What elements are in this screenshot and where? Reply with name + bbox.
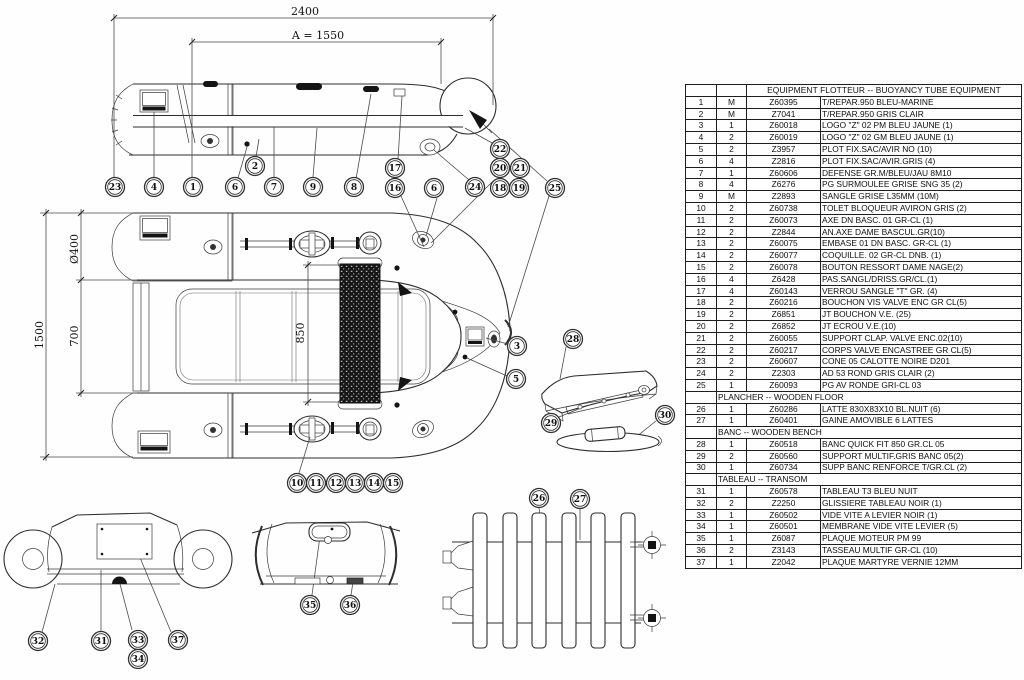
cell-no: 7 [686, 167, 717, 179]
svg-text:36: 36 [344, 601, 357, 611]
cell-qty: 1 [717, 120, 747, 132]
cell-qty: 4 [717, 273, 747, 285]
svg-text:13: 13 [349, 479, 362, 489]
callout-16: 16 [386, 179, 405, 198]
svg-text:31: 31 [95, 637, 108, 647]
table-section-row: BANC -- WOODEN BENCH [686, 427, 1022, 439]
cell-qty: 1 [717, 521, 747, 533]
section-title: TABLEAU -- TRANSOM [717, 474, 1022, 486]
svg-text:12: 12 [330, 479, 343, 489]
table-row: 2MZ7041T/REPAR.950 GRIS CLAIR [686, 108, 1022, 120]
callout-27: 27 [571, 490, 590, 509]
cell-ref: Z2303 [747, 368, 821, 380]
cell-no: 19 [686, 309, 717, 321]
cell-ref: Z60502 [747, 509, 821, 521]
cell-ref: Z60018 [747, 120, 821, 132]
svg-text:6: 6 [232, 183, 238, 193]
cell-qty: M [717, 96, 747, 108]
cell-desc: LOGO "Z" 02 GM BLEU JAUNE (1) [821, 132, 1022, 144]
cell-ref: Z6276 [747, 179, 821, 191]
table-row: 182Z60216BOUCHON VIS VALVE ENC GR CL(5) [686, 297, 1022, 309]
callout-11: 11 [307, 474, 326, 493]
callout-14: 14 [365, 474, 384, 493]
cell-qty: 2 [717, 238, 747, 250]
callout-35: 35 [301, 596, 320, 615]
callout-1: 1 [184, 178, 203, 197]
svg-text:8: 8 [351, 183, 357, 193]
cell-qty: 1 [717, 533, 747, 545]
cell-desc: BANC QUICK FIT 850 GR.CL 05 [821, 438, 1022, 450]
cell-no: 26 [686, 403, 717, 415]
cell-no: 2 [686, 108, 717, 120]
cell-no: 23 [686, 356, 717, 368]
svg-text:26: 26 [533, 494, 546, 504]
cell-no: 3 [686, 120, 717, 132]
table-row: 341Z60501MEMBRANE VIDE VITE LEVIER (5) [686, 521, 1022, 533]
cell-qty: 1 [717, 415, 747, 427]
parts-table-body: 1MZ60395T/REPAR.950 BLEU-MARINE2MZ7041T/… [686, 96, 1022, 568]
cell-desc: GAINE AMOVIBLE 6 LATTES [821, 415, 1022, 427]
cell-ref: Z60560 [747, 450, 821, 462]
cell-ref: Z2042 [747, 556, 821, 568]
cell-desc: AN.AXE DAME BASCUL.GR(10) [821, 226, 1022, 238]
callout-9: 9 [304, 178, 323, 197]
cell-qty: 4 [717, 155, 747, 167]
cell-desc: VIDE VITE A LEVIER NOIR (1) [821, 509, 1022, 521]
svg-text:14: 14 [368, 479, 381, 489]
dimension-label-1500: 1500 [33, 321, 46, 349]
cell-qty: M [717, 108, 747, 120]
cell-no: 36 [686, 545, 717, 557]
cell-qty: 1 [717, 438, 747, 450]
cell-no: 1 [686, 96, 717, 108]
callout-7: 7 [265, 178, 284, 197]
cell-qty: 2 [717, 297, 747, 309]
callout-34: 34 [129, 650, 148, 669]
cell-qty: 2 [717, 356, 747, 368]
cell-ref: Z60286 [747, 403, 821, 415]
cell-qty: 1 [717, 379, 747, 391]
callout-6: 6 [425, 179, 444, 198]
callout-28: 28 [564, 330, 583, 349]
callout-21: 21 [511, 159, 530, 178]
cell-desc: LATTE 830X83X10 BL.NUIT (6) [821, 403, 1022, 415]
motor-plate [97, 524, 152, 559]
dimension-label-700: 700 [68, 326, 81, 347]
table-row: 371Z2042PLAQUE MARTYRE VERNIE 12MM [686, 556, 1022, 568]
table-row: 292Z60560SUPPORT MULTIF.GRIS BANC 05(2) [686, 450, 1022, 462]
cell-desc: TABLEAU T3 BLEU NUIT [821, 486, 1022, 498]
drain-dome [112, 577, 127, 585]
cell-ref: Z6851 [747, 309, 821, 321]
header-qty-cell [717, 85, 747, 97]
cell-qty: 2 [717, 332, 747, 344]
svg-text:20: 20 [494, 164, 507, 174]
cell-desc: JT BOUCHON V.E. (25) [821, 309, 1022, 321]
cell-ref: Z60019 [747, 132, 821, 144]
cell-ref: Z6852 [747, 320, 821, 332]
plan-view [112, 213, 511, 458]
callout-29: 29 [542, 414, 561, 433]
table-row: 71Z60606DEFENSE GR.M/BLEU/JAU 8M10 [686, 167, 1022, 179]
valve-fitting [204, 240, 222, 437]
svg-text:23: 23 [109, 183, 122, 193]
cell-desc: AXE DN BASC. 01 GR-CL (1) [821, 214, 1022, 226]
svg-text:16: 16 [389, 184, 402, 194]
cell-qty: 4 [717, 179, 747, 191]
cell-ref: Z60055 [747, 332, 821, 344]
cell-no: 24 [686, 368, 717, 380]
cell-ref: Z2844 [747, 226, 821, 238]
callout-10: 10 [288, 474, 307, 493]
table-title: EQUIPMENT FLOTTEUR -- BUOYANCY TUBE EQUI… [747, 85, 1022, 97]
svg-text:32: 32 [32, 637, 45, 647]
cell-desc: PG AV RONDE GRI-CL 03 [821, 379, 1022, 391]
cell-no: 6 [686, 155, 717, 167]
table-row: 222Z60217CORPS VALVE ENCASTREE GR CL(5) [686, 344, 1022, 356]
table-row: 362Z3143TASSEAU MULTIF GR-CL (10) [686, 545, 1022, 557]
parts-list: EQUIPMENT FLOTTEUR -- BUOYANCY TUBE EQUI… [685, 84, 1022, 569]
cell-qty: 2 [717, 202, 747, 214]
side-view [111, 78, 496, 155]
table-row: 192Z6851JT BOUCHON V.E. (25) [686, 309, 1022, 321]
callout-13: 13 [346, 474, 365, 493]
svg-text:17: 17 [389, 164, 402, 174]
callout-24: 24 [466, 178, 485, 197]
cell-qty: 2 [717, 226, 747, 238]
cell-no: 14 [686, 250, 717, 262]
cell-desc: BOUCHON VIS VALVE ENC GR CL(5) [821, 297, 1022, 309]
svg-text:35: 35 [304, 601, 317, 611]
table-row: 212Z60055SUPPORT CLAP. VALVE ENC.02(10) [686, 332, 1022, 344]
cell-qty: 2 [717, 132, 747, 144]
cell-no: 27 [686, 415, 717, 427]
table-row: 9MZ2893SANGLE GRISE L35MM (10M) [686, 191, 1022, 203]
cell-no: 35 [686, 533, 717, 545]
cell-ref: Z2816 [747, 155, 821, 167]
cell-no: 11 [686, 214, 717, 226]
table-row: 174Z60143VERROU SANGLE "T" GR. (4) [686, 285, 1022, 297]
cell-desc: SUPPORT CLAP. VALVE ENC.02(10) [821, 332, 1022, 344]
bow-valve-fitting [410, 417, 437, 441]
gaine-end-flaps [443, 541, 473, 616]
cell-qty: 2 [717, 368, 747, 380]
oar-assembly-top [240, 231, 381, 257]
oar-assembly-bottom [240, 416, 381, 442]
cell-ref: Z60078 [747, 261, 821, 273]
table-row: 311Z60578TABLEAU T3 BLEU NUIT [686, 486, 1022, 498]
table-row: 164Z6428PAS.SANGL/DRISS.GR/CL.(1) [686, 273, 1022, 285]
cell-ref: Z60077 [747, 250, 821, 262]
table-row: 271Z60401GAINE AMOVIBLE 6 LATTES [686, 415, 1022, 427]
callout-2: 2 [246, 157, 265, 176]
cell-qty: 2 [717, 143, 747, 155]
cell-ref: Z60216 [747, 297, 821, 309]
svg-text:27: 27 [574, 495, 587, 505]
cell-qty: 2 [717, 261, 747, 273]
cell-desc: EMBASE 01 DN BASC. GR-CL (1) [821, 238, 1022, 250]
table-row: 322Z2250GLISSIERE TABLEAU NOIR (1) [686, 497, 1022, 509]
cell-no: 8 [686, 179, 717, 191]
cell-no: 18 [686, 297, 717, 309]
cell-no: 33 [686, 509, 717, 521]
logo-patch-plan-top [140, 216, 170, 240]
table-row: 301Z60734SUPP BANC RENFORCE T/GR.CL (2) [686, 462, 1022, 474]
callout-32: 32 [29, 632, 48, 651]
cell-qty: 2 [717, 450, 747, 462]
svg-text:37: 37 [172, 636, 185, 646]
table-row: 42Z60019LOGO "Z" 02 GM BLEU JAUNE (1) [686, 132, 1022, 144]
cell-desc: COQUILLE. 02 GR-CL DNB. (1) [821, 250, 1022, 262]
svg-text:5: 5 [513, 375, 519, 385]
cell-desc: TOLET BLOQUEUR AVIRON GRIS (2) [821, 202, 1022, 214]
cell-desc: DEFENSE GR.M/BLEU/JAU 8M10 [821, 167, 1022, 179]
cell-no: 28 [686, 438, 717, 450]
cell-ref: Z60607 [747, 356, 821, 368]
cell-ref: Z60734 [747, 462, 821, 474]
cell-ref: Z60073 [747, 214, 821, 226]
svg-text:19: 19 [513, 184, 526, 194]
cell-qty: 2 [717, 214, 747, 226]
cell-desc: PG SURMOULEE GRISE SNG 35 (2) [821, 179, 1022, 191]
callout-4: 4 [145, 178, 164, 197]
logo-patch-side [140, 90, 168, 112]
cell-desc: CONE 05 CALOTTE NOIRE D201 [821, 356, 1022, 368]
svg-text:18: 18 [494, 184, 507, 194]
cell-ref: Z3957 [747, 143, 821, 155]
cell-desc: PLAQUE MOTEUR PM 99 [821, 533, 1022, 545]
dimension-label-2400: 2400 [291, 5, 319, 18]
cell-ref: Z60518 [747, 438, 821, 450]
bow-valve-fitting [410, 228, 437, 252]
transom-plan [133, 283, 149, 391]
cell-ref: Z6087 [747, 533, 821, 545]
cell-ref: Z60606 [747, 167, 821, 179]
table-section-row: TABLEAU -- TRANSOM [686, 474, 1022, 486]
cell-qty: 1 [717, 509, 747, 521]
cell-ref: Z60501 [747, 521, 821, 533]
transom-rear-view [4, 513, 232, 588]
table-row: 281Z60518BANC QUICK FIT 850 GR.CL 05 [686, 438, 1022, 450]
svg-text:24: 24 [469, 183, 482, 193]
table-row: 84Z6276PG SURMOULEE GRISE SNG 35 (2) [686, 179, 1022, 191]
section-no-cell [686, 391, 717, 403]
callout-25: 25 [546, 179, 565, 198]
cap-hatch-ticks [111, 95, 122, 145]
drawing-sheet: 2400A = 15501500Ø400700850 2341627981716… [0, 0, 1024, 680]
cell-no: 29 [686, 450, 717, 462]
cell-qty: 2 [717, 545, 747, 557]
cell-no: 12 [686, 226, 717, 238]
table-row: 122Z2844AN.AXE DAME BASCUL.GR(10) [686, 226, 1022, 238]
bench-perspective-view [542, 371, 662, 452]
bench-seat-section [309, 523, 350, 544]
callout-20: 20 [491, 159, 510, 178]
cell-qty: 1 [717, 167, 747, 179]
cell-desc: SUPPORT MULTIF.GRIS BANC 05(2) [821, 450, 1022, 462]
cell-ref: Z6428 [747, 273, 821, 285]
callout-8: 8 [345, 178, 364, 197]
cell-desc: SANGLE GRISE L35MM (10M) [821, 191, 1022, 203]
svg-text:11: 11 [310, 479, 323, 489]
cell-no: 30 [686, 462, 717, 474]
section-title: PLANCHER -- WOODEN FLOOR [717, 391, 1022, 403]
cell-no: 5 [686, 143, 717, 155]
svg-text:30: 30 [659, 411, 672, 421]
svg-text:33: 33 [132, 636, 145, 646]
strap-lock [394, 89, 405, 96]
callout-12: 12 [327, 474, 346, 493]
cell-qty: 2 [717, 497, 747, 509]
table-row: 52Z3957PLOT FIX.SAC/AVIR NO (10) [686, 143, 1022, 155]
svg-text:29: 29 [545, 419, 558, 429]
cell-desc: TASSEAU MULTIF GR-CL (10) [821, 545, 1022, 557]
table-row: 64Z2816PLOT FIX.SAC/AVIR.GRIS (4) [686, 155, 1022, 167]
svg-text:4: 4 [151, 183, 157, 193]
cell-desc: LOGO "Z" 02 PM BLEU JAUNE (1) [821, 120, 1022, 132]
cell-desc: PLAQUE MARTYRE VERNIE 12MM [821, 556, 1022, 568]
cell-qty: 1 [717, 403, 747, 415]
cell-no: 13 [686, 238, 717, 250]
slats [473, 513, 635, 648]
callout-33: 33 [129, 631, 148, 650]
table-row: 112Z60073AXE DN BASC. 01 GR-CL (1) [686, 214, 1022, 226]
cell-no: 31 [686, 486, 717, 498]
callout-5: 5 [507, 370, 526, 389]
dimension-label-400: Ø400 [68, 234, 81, 264]
bench-plan [338, 258, 382, 409]
cell-ref: Z60738 [747, 202, 821, 214]
dimension-labels: 2400A = 15501500Ø400700850 [33, 5, 344, 349]
callout-23: 23 [106, 178, 125, 197]
header-no-cell [686, 85, 717, 97]
cell-ref: Z7041 [747, 108, 821, 120]
svg-text:3: 3 [514, 342, 520, 352]
table-row: 102Z60738TOLET BLOQUEUR AVIRON GRIS (2) [686, 202, 1022, 214]
cell-no: 10 [686, 202, 717, 214]
table-row: 242Z2303AD 53 ROND GRIS CLAIR (2) [686, 368, 1022, 380]
table-row: 251Z60093PG AV RONDE GRI-CL 03 [686, 379, 1022, 391]
cell-qty: 4 [717, 285, 747, 297]
cell-no: 21 [686, 332, 717, 344]
cell-ref: Z60578 [747, 486, 821, 498]
cell-qty: 2 [717, 250, 747, 262]
cell-desc: AD 53 ROND GRIS CLAIR (2) [821, 368, 1022, 380]
callout-15: 15 [384, 474, 403, 493]
cell-no: 16 [686, 273, 717, 285]
callout-36: 36 [341, 596, 360, 615]
table-section-row: PLANCHER -- WOODEN FLOOR [686, 391, 1022, 403]
cell-no: 32 [686, 497, 717, 509]
callout-22: 22 [491, 140, 510, 159]
callout-26: 26 [530, 489, 549, 508]
svg-text:9: 9 [310, 183, 316, 193]
cell-qty: 1 [717, 486, 747, 498]
cell-desc: SUPP BANC RENFORCE T/GR.CL (2) [821, 462, 1022, 474]
cell-qty: 1 [717, 462, 747, 474]
cell-no: 20 [686, 320, 717, 332]
cell-ref: Z60143 [747, 285, 821, 297]
callout-6: 6 [226, 178, 245, 197]
section-no-cell [686, 474, 717, 486]
cell-qty: 2 [717, 320, 747, 332]
callout-3: 3 [508, 337, 527, 356]
logo-patch-plan-bottom [138, 431, 170, 453]
svg-text:2: 2 [252, 162, 258, 172]
cell-ref: Z60093 [747, 379, 821, 391]
cell-desc: JT ECROU V.E.(10) [821, 320, 1022, 332]
cell-no: 37 [686, 556, 717, 568]
cell-desc: PAS.SANGL/DRISS.GR/CL.(1) [821, 273, 1022, 285]
cell-no: 4 [686, 132, 717, 144]
parts-table: EQUIPMENT FLOTTEUR -- BUOYANCY TUBE EQUI… [685, 84, 1022, 569]
svg-text:21: 21 [514, 164, 527, 174]
svg-text:15: 15 [387, 479, 400, 489]
cell-desc: T/REPAR.950 GRIS CLAIR [821, 108, 1022, 120]
table-header-row: EQUIPMENT FLOTTEUR -- BUOYANCY TUBE EQUI… [686, 85, 1022, 97]
svg-text:1: 1 [190, 183, 196, 193]
table-row: 331Z60502VIDE VITE A LEVIER NOIR (1) [686, 509, 1022, 521]
svg-text:34: 34 [132, 655, 145, 665]
svg-text:6: 6 [431, 184, 437, 194]
callout-18: 18 [491, 179, 510, 198]
cell-ref: Z60395 [747, 96, 821, 108]
cell-qty: 1 [717, 556, 747, 568]
svg-text:7: 7 [271, 183, 277, 193]
dimension-label-850: 850 [294, 323, 307, 344]
cell-ref: Z2250 [747, 497, 821, 509]
cell-ref: Z60075 [747, 238, 821, 250]
cell-desc: PLOT FIX.SAC/AVIR.GRIS (4) [821, 155, 1022, 167]
fender-band [133, 116, 455, 127]
cell-desc: T/REPAR.950 BLEU-MARINE [821, 96, 1022, 108]
section-title: BANC -- WOODEN BENCH [717, 427, 1022, 439]
cell-desc: PLOT FIX.SAC/AVIR NO (10) [821, 143, 1022, 155]
callout-37: 37 [169, 631, 188, 650]
cell-desc: VERROU SANGLE "T" GR. (4) [821, 285, 1022, 297]
svg-text:28: 28 [567, 335, 580, 345]
cell-ref: Z60401 [747, 415, 821, 427]
cell-no: 34 [686, 521, 717, 533]
cell-ref: Z3143 [747, 545, 821, 557]
cell-desc: CORPS VALVE ENCASTREE GR CL(5) [821, 344, 1022, 356]
cell-desc: MEMBRANE VIDE VITE LEVIER (5) [821, 521, 1022, 533]
handle-icon [363, 86, 379, 92]
table-row: 351Z6087PLAQUE MOTEUR PM 99 [686, 533, 1022, 545]
table-row: 142Z60077COQUILLE. 02 GR-CL DNB. (1) [686, 250, 1022, 262]
cell-qty: 2 [717, 344, 747, 356]
svg-text:25: 25 [549, 184, 562, 194]
svg-text:10: 10 [291, 479, 304, 489]
table-row: 232Z60607CONE 05 CALOTTE NOIRE D201 [686, 356, 1022, 368]
handle-icon [203, 81, 218, 87]
callout-19: 19 [510, 179, 529, 198]
table-row: 202Z6852JT ECROU V.E.(10) [686, 320, 1022, 332]
cell-ref: Z60217 [747, 344, 821, 356]
svg-text:22: 22 [494, 145, 507, 155]
handle-icon [296, 83, 322, 90]
callout-30: 30 [656, 406, 675, 425]
cell-no: 17 [686, 285, 717, 297]
callout-17: 17 [386, 159, 405, 178]
cell-no: 9 [686, 191, 717, 203]
cell-qty: 2 [717, 309, 747, 321]
cell-no: 15 [686, 261, 717, 273]
logo-patch-bow [466, 327, 484, 346]
table-row: 132Z60075EMBASE 01 DN BASC. GR-CL (1) [686, 238, 1022, 250]
cell-desc: GLISSIERE TABLEAU NOIR (1) [821, 497, 1022, 509]
cell-no: 22 [686, 344, 717, 356]
